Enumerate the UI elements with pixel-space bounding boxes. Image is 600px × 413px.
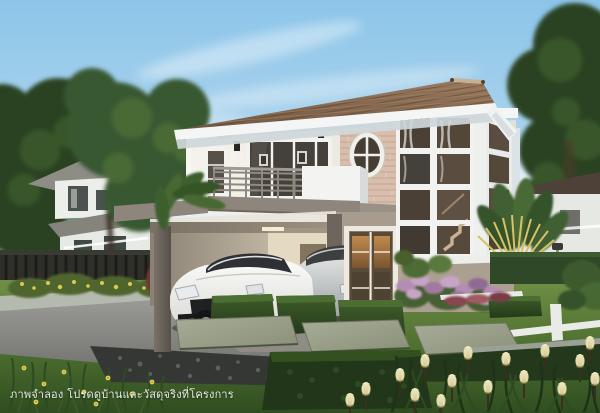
house-rendering (0, 0, 600, 413)
carport-column-left (154, 226, 171, 352)
scene-image: ภาพจำลอง โปรดดูบ้านและวัสดุจริงที่โครงกา… (0, 0, 600, 413)
watermark-caption: ภาพจำลอง โปรดดูบ้านและวัสดุจริงที่โครงกา… (10, 388, 330, 402)
